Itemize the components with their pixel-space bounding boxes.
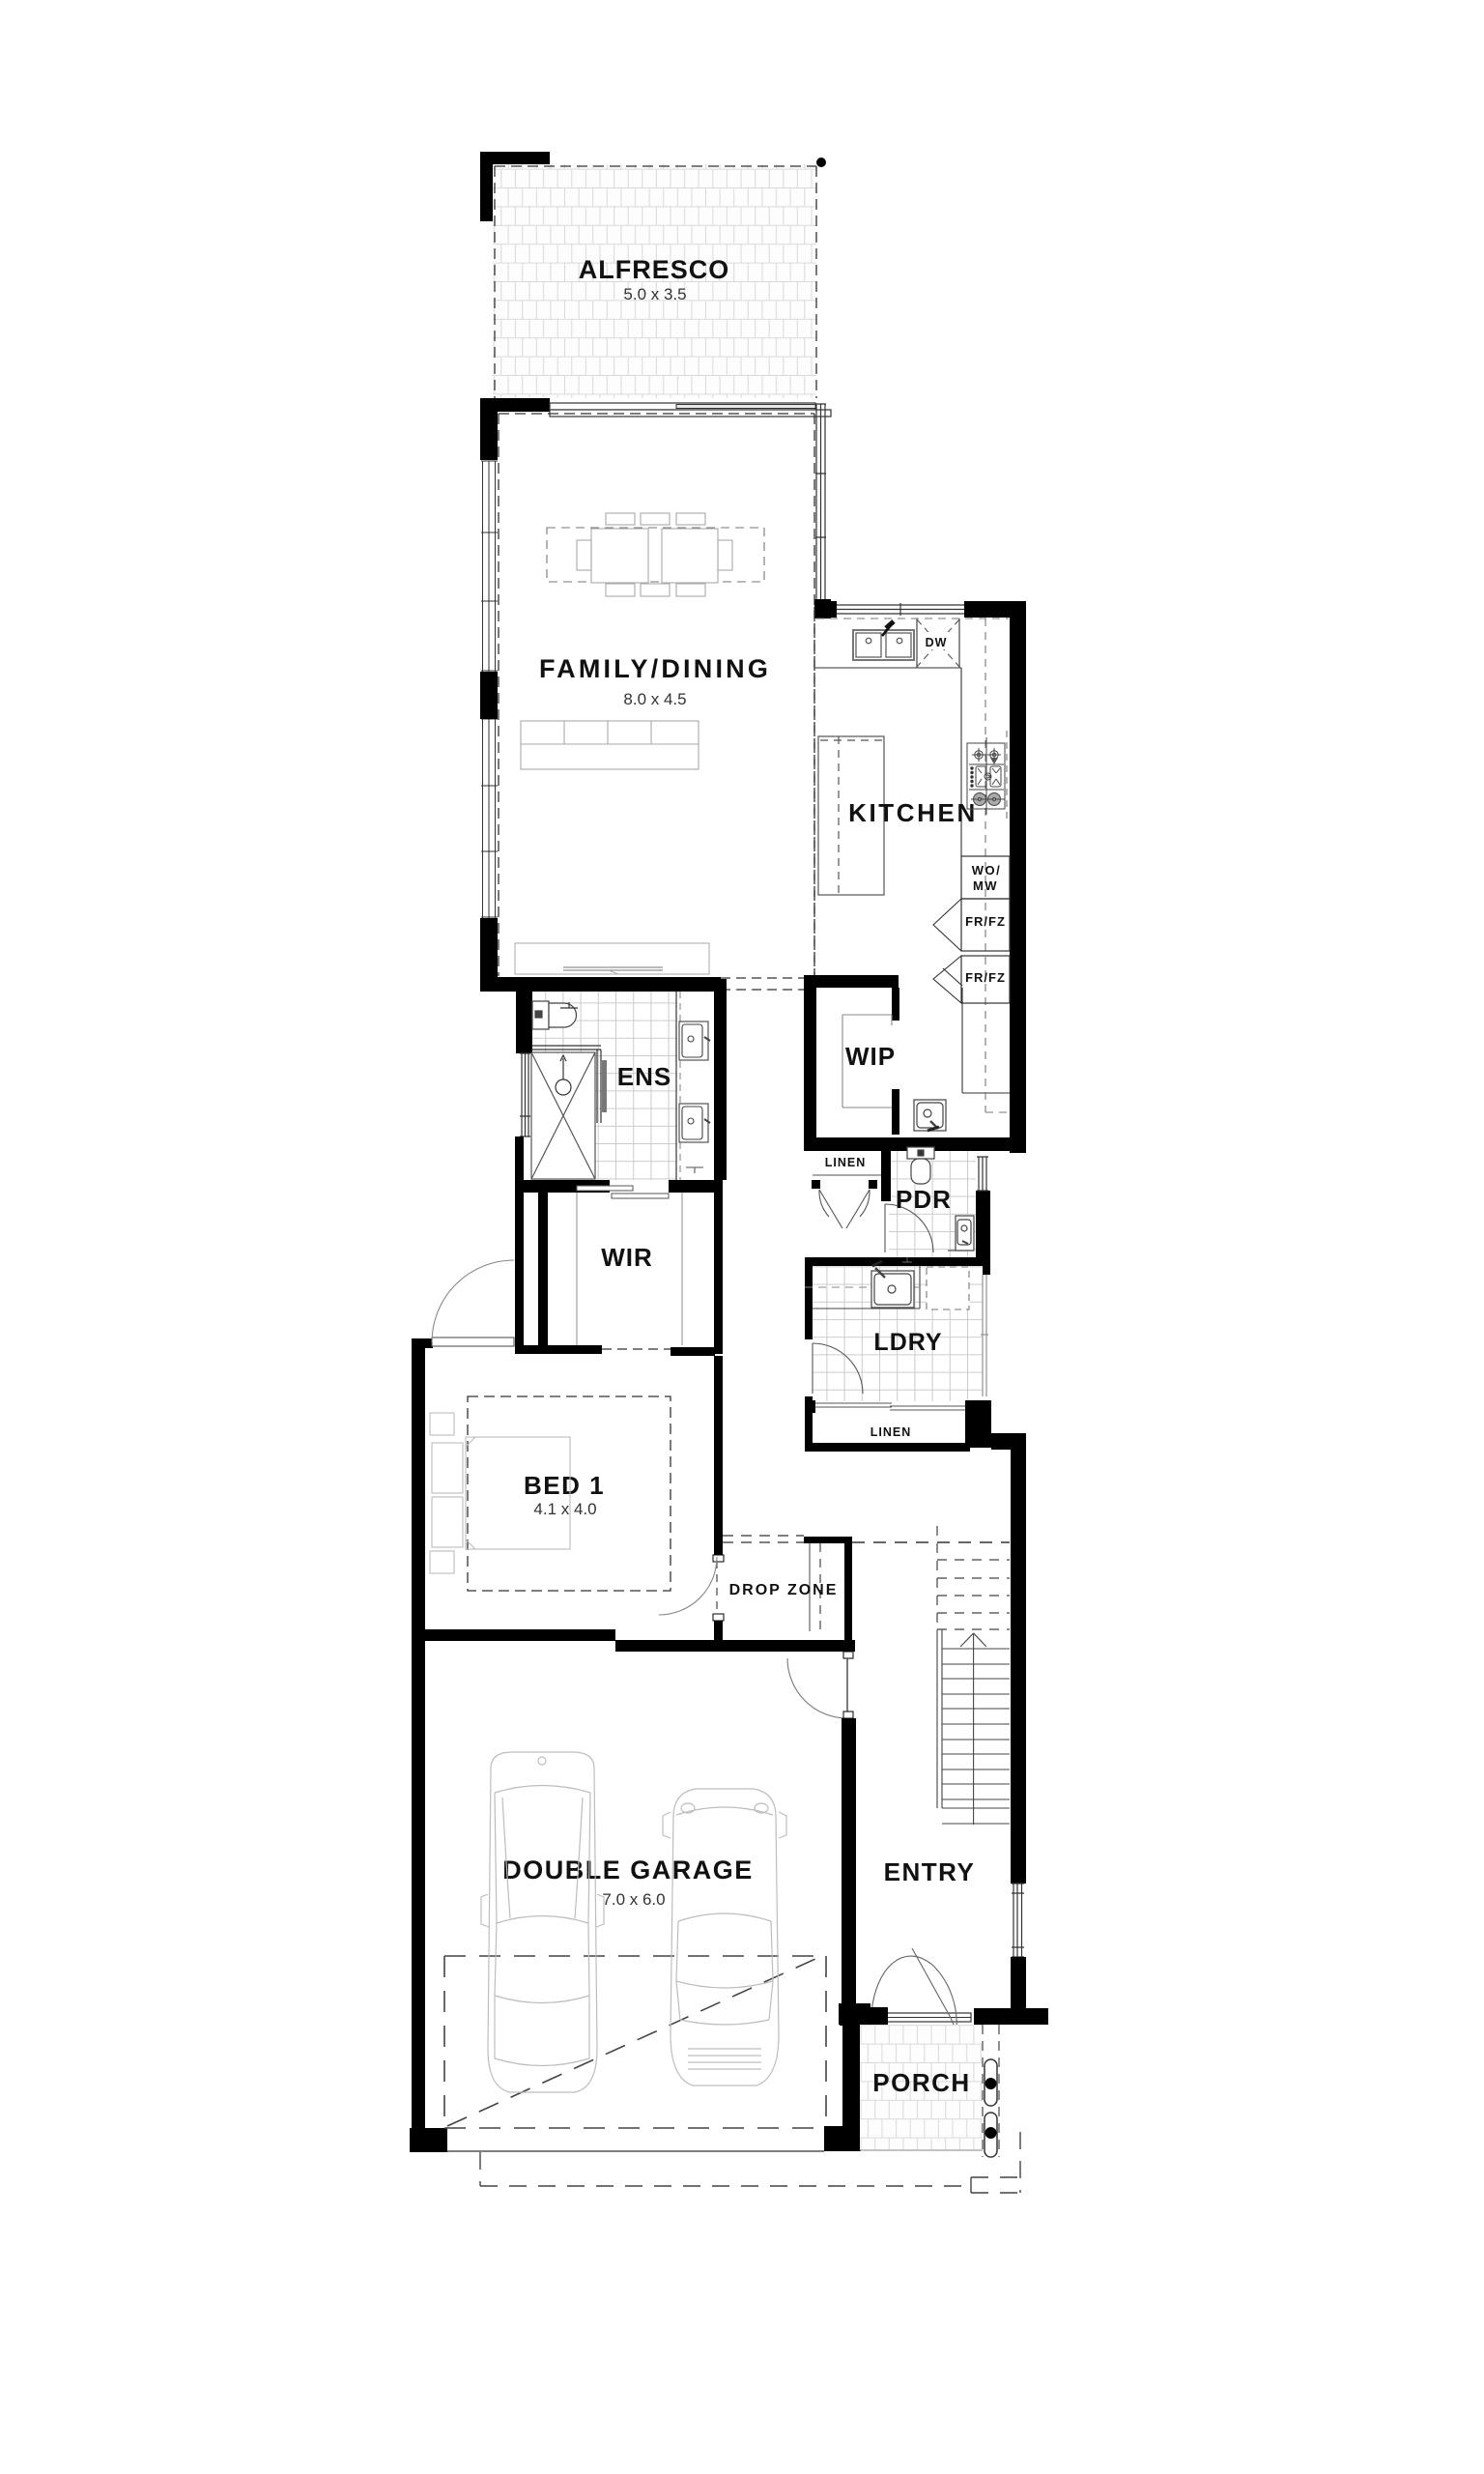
svg-text:WO/: WO/ [972,863,1002,877]
svg-text:4.1 x 4.0: 4.1 x 4.0 [533,1500,596,1518]
svg-text:WIR: WIR [601,1243,653,1272]
svg-text:KITCHEN: KITCHEN [848,798,978,827]
svg-text:5.0 x 3.5: 5.0 x 3.5 [623,285,686,303]
svg-text:DOUBLE GARAGE: DOUBLE GARAGE [502,1855,754,1884]
svg-text:FR/FZ: FR/FZ [965,970,1006,985]
svg-text:LDRY: LDRY [873,1329,942,1356]
svg-text:WIP: WIP [845,1042,896,1071]
svg-text:LINEN: LINEN [825,1156,867,1169]
svg-text:ENTRY: ENTRY [884,1857,976,1886]
svg-text:ALFRESCO: ALFRESCO [579,255,730,284]
svg-text:MW: MW [973,878,998,893]
svg-text:ENS: ENS [617,1062,671,1091]
svg-text:DW: DW [926,636,948,649]
svg-text:7.0 x 6.0: 7.0 x 6.0 [602,1890,665,1909]
svg-text:BED 1: BED 1 [524,1471,605,1500]
svg-text:LINEN: LINEN [870,1425,912,1439]
svg-text:8.0 x 4.5: 8.0 x 4.5 [623,690,686,708]
svg-text:PORCH: PORCH [872,2068,970,2097]
svg-text:PDR: PDR [896,1185,952,1214]
svg-text:DROP ZONE: DROP ZONE [729,1582,839,1598]
svg-text:FAMILY/DINING: FAMILY/DINING [539,654,771,683]
svg-text:FR/FZ: FR/FZ [965,914,1006,929]
